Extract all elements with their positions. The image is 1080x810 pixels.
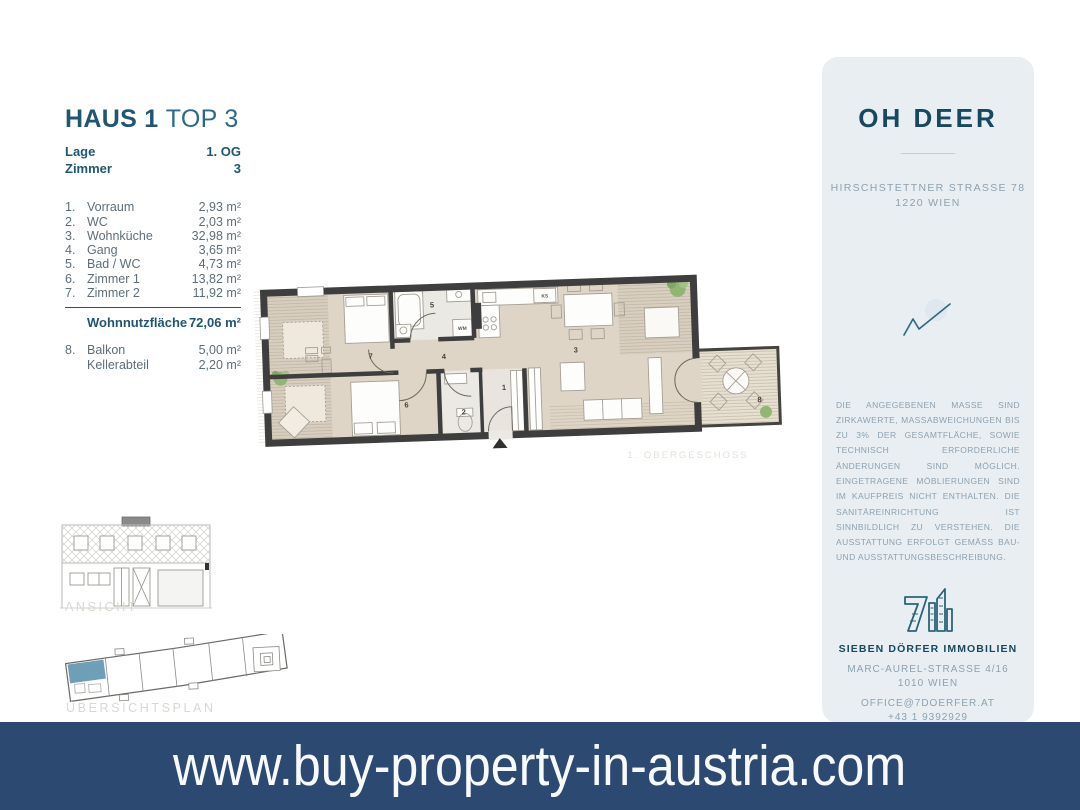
north-arrow-icon	[896, 295, 960, 341]
room-row: 7.Zimmer 211,92 m²	[65, 286, 241, 300]
meta-row-zimmer: Zimmer 3	[65, 160, 241, 177]
apartment-info-panel: HAUS 1 TOP 3 Lage 1. OG Zimmer 3 1.Vorra…	[65, 106, 241, 372]
room-number-1: 1	[502, 383, 506, 392]
washbasin	[396, 324, 411, 338]
terrace-box	[644, 307, 679, 338]
meta-table: Lage 1. OG Zimmer 3	[65, 143, 241, 177]
room-row: 1.Vorraum2,93 m²	[65, 200, 241, 214]
dining-table	[564, 293, 613, 327]
garage-door	[158, 570, 203, 606]
room-number-8: 8	[757, 395, 761, 404]
page-title-haus: HAUS 1	[65, 105, 159, 133]
project-name: OH DEER	[822, 103, 1034, 134]
page-title-top: TOP 3	[166, 105, 239, 133]
floorplan-caption: 1. OBERGESCHOSS	[627, 450, 748, 461]
room-number-6: 6	[404, 400, 408, 409]
meta-label: Lage	[65, 143, 95, 160]
room-number-2: 2	[462, 407, 466, 416]
window	[70, 573, 84, 585]
sidebar-divider	[901, 153, 955, 154]
room-row: 8.Balkon5,00 m²	[65, 343, 241, 357]
project-address: HIRSCHSTETTNER STRASSE 78 1220 WIEN	[822, 181, 1034, 211]
room-number-5: 5	[430, 300, 434, 309]
coffee-table	[560, 362, 585, 391]
company-address: MARC-AUREL-STRASSE 4/16 1010 WIEN	[822, 663, 1034, 691]
total-divider	[65, 307, 241, 308]
company-email: OFFICE@7DOERFER.AT	[822, 697, 1034, 711]
meta-value: 3	[234, 160, 241, 177]
sofa	[583, 398, 642, 420]
window	[262, 391, 272, 413]
total-label: Wohnnutzfläche	[87, 315, 189, 331]
window	[260, 317, 270, 339]
company-name: SIEBEN DÖRFER IMMOBILIEN	[822, 643, 1034, 655]
room-row: 5.Bad / WC4,73 m²	[65, 257, 241, 271]
website-url: www.buy-property-in-austria.com	[173, 733, 906, 799]
company-contact: OFFICE@7DOERFER.AT +43 1 9392929	[822, 697, 1034, 725]
meta-row-lage: Lage 1. OG	[65, 143, 241, 160]
room-list: 1.Vorraum2,93 m² 2.WC2,03 m² 3.Wohnküche…	[65, 200, 241, 372]
fridge-label: KS	[541, 293, 549, 299]
room-row: 2.WC2,03 m²	[65, 215, 241, 229]
company-logo-icon	[899, 581, 957, 639]
room-number-7: 7	[369, 352, 373, 361]
total-value: 72,06 m²	[189, 315, 241, 331]
brochure-page: HAUS 1 TOP 3 Lage 1. OG Zimmer 3 1.Vorra…	[0, 0, 1080, 810]
washer-label: WM	[458, 326, 467, 332]
siteplan-caption: ÜBERSICHTSPLAN	[66, 701, 216, 715]
floor-plan-drawing: 1 2 3 4 5 6 7 8 KS WM 1. OBERGESCHOSS	[248, 256, 818, 471]
total-row: Wohnnutzfläche 72,06 m²	[65, 315, 241, 331]
meta-value: 1. OG	[206, 143, 241, 160]
window	[297, 287, 323, 297]
extras-list: 8.Balkon5,00 m² Kellerabteil2,20 m²	[65, 343, 241, 372]
room-row: 6.Zimmer 113,82 m²	[65, 272, 241, 286]
disclaimer-text: DIE ANGEGEBENEN MASSE SIND ZIRKAWERTE, M…	[836, 398, 1020, 566]
room-row: Kellerabteil2,20 m²	[65, 358, 241, 372]
meta-label: Zimmer	[65, 160, 112, 177]
room-row: 3.Wohnküche32,98 m²	[65, 229, 241, 243]
room-number-3: 3	[573, 345, 577, 354]
room-row: 4.Gang3,65 m²	[65, 243, 241, 257]
elevation-caption: ANSICHT	[65, 600, 138, 614]
sideboard	[648, 357, 663, 413]
page-title: HAUS 1 TOP 3	[65, 106, 241, 132]
sidebar-card: OH DEER HIRSCHSTETTNER STRASSE 78 1220 W…	[822, 57, 1034, 723]
footer-banner: www.buy-property-in-austria.com	[0, 722, 1080, 810]
